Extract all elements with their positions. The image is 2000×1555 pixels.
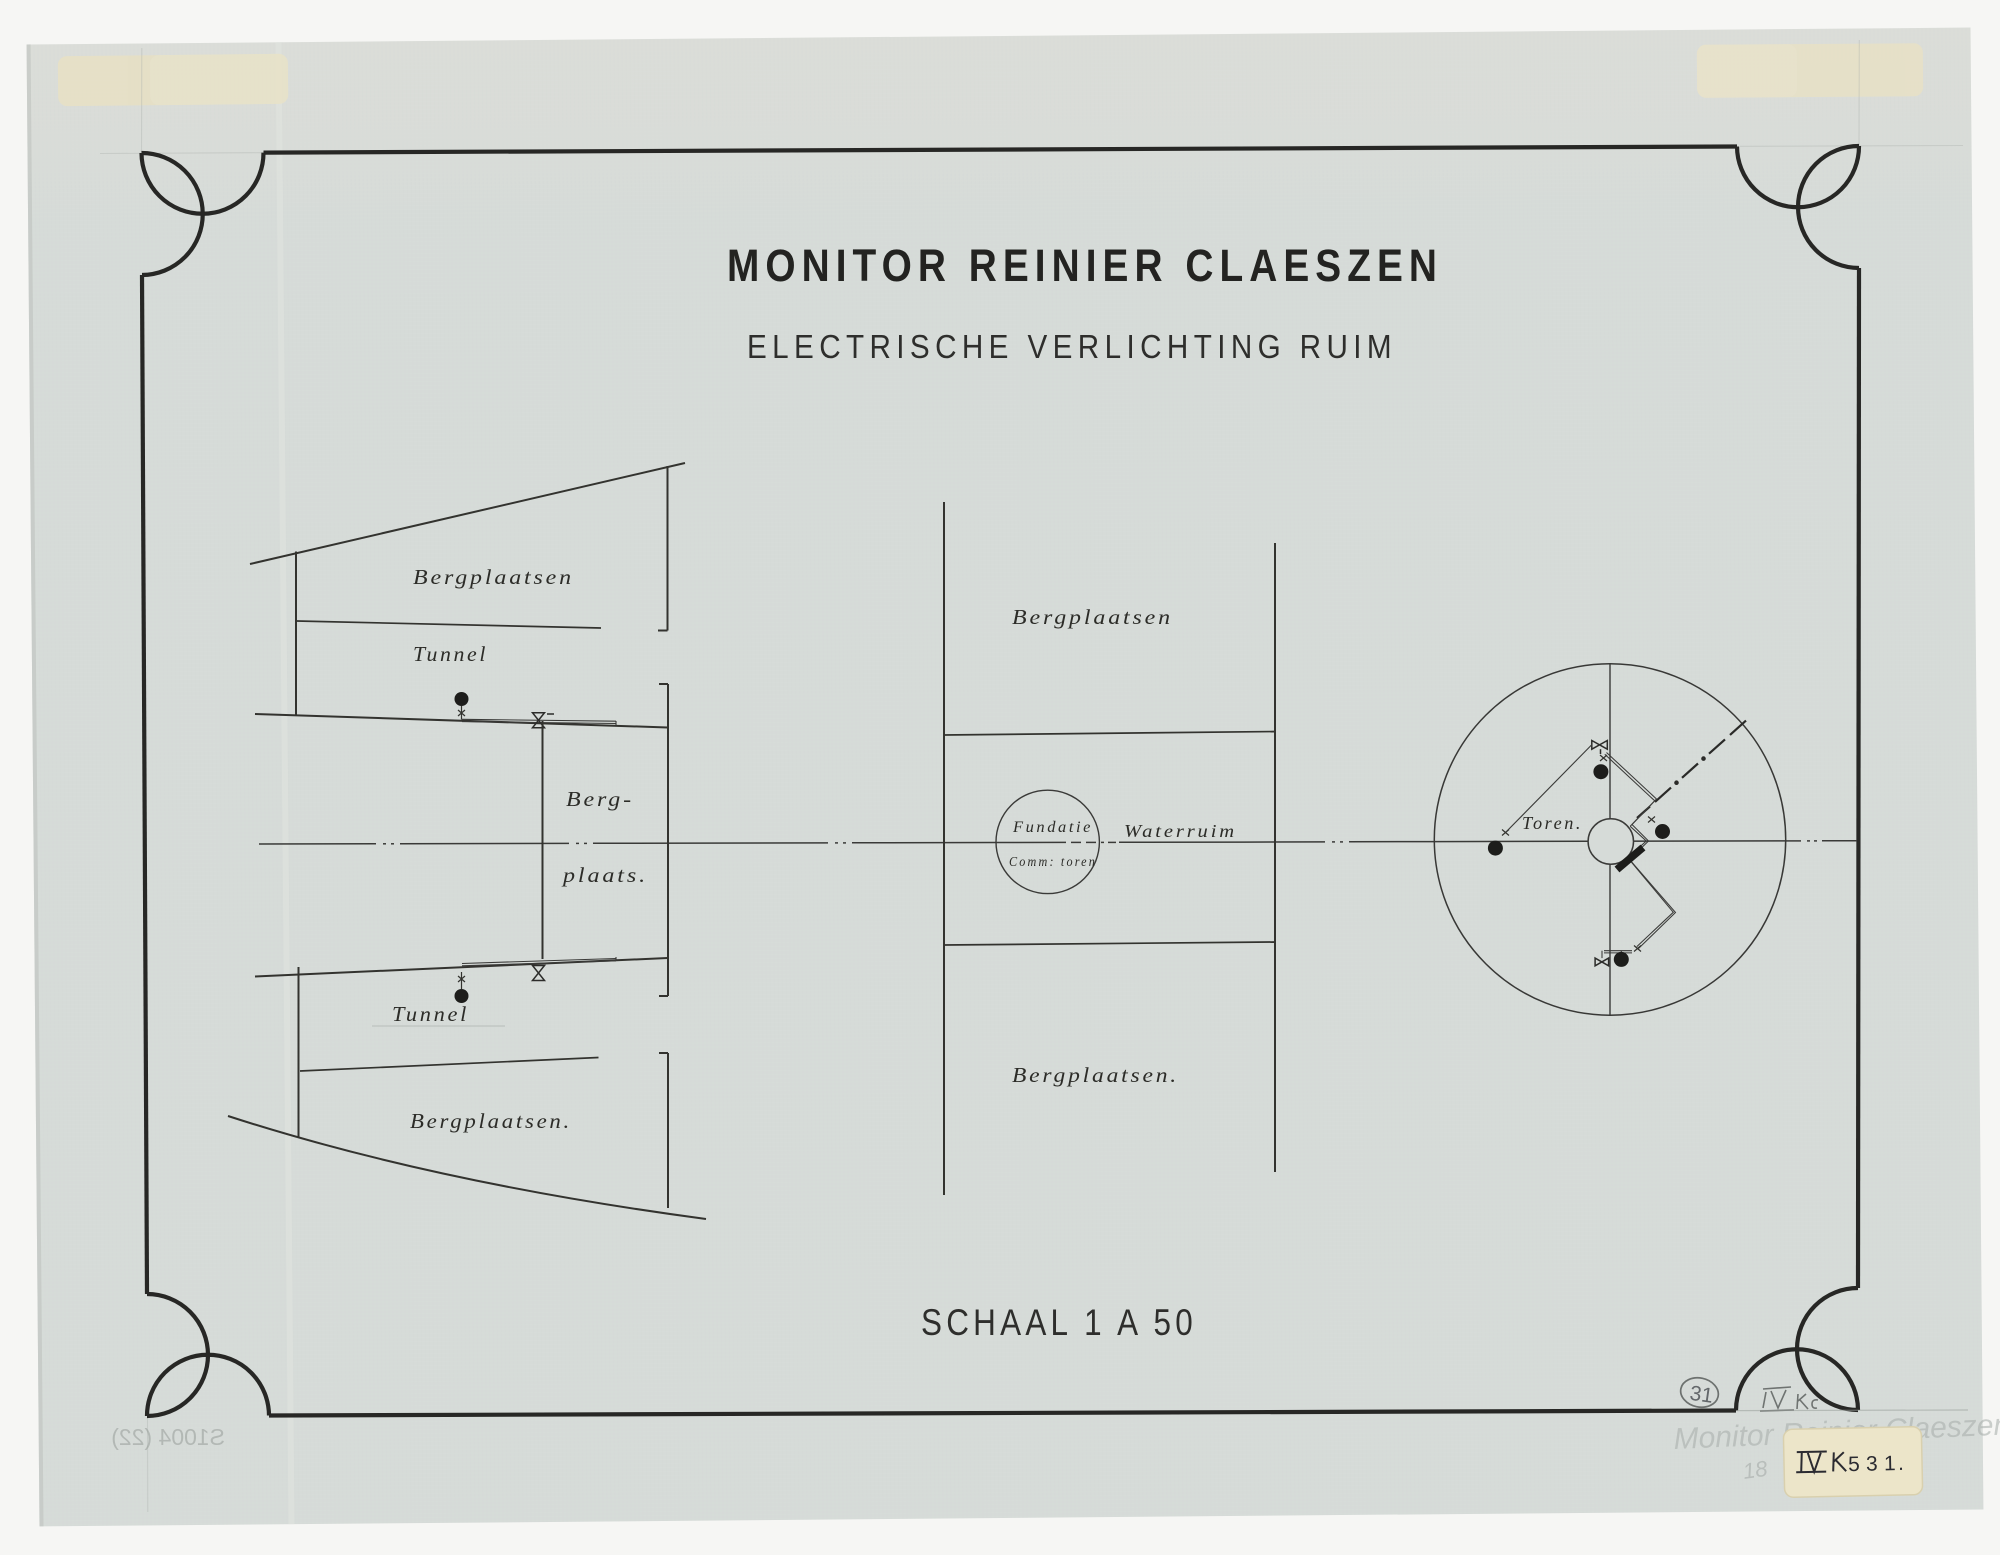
svg-text:Bergplaatsen: Bergplaatsen <box>1012 605 1173 629</box>
svg-text:Bergplaatsen.: Bergplaatsen. <box>410 1109 572 1133</box>
svg-text:18: 18 <box>1741 1456 1769 1484</box>
svg-text:ELECTRISCHE VERLICHTING RUIM: ELECTRISCHE VERLICHTING RUIM <box>747 328 1397 365</box>
svg-text:Berg-: Berg- <box>566 787 634 811</box>
svg-text:Bergplaatsen: Bergplaatsen <box>413 565 574 589</box>
svg-text:plaats.: plaats. <box>561 863 648 887</box>
svg-text:S1004 (22): S1004 (22) <box>111 1424 225 1450</box>
svg-text:Comm: toren: Comm: toren <box>1009 855 1097 870</box>
svg-text:Waterruim: Waterruim <box>1124 821 1237 841</box>
svg-text:SCHAAL 1 A 50: SCHAAL 1 A 50 <box>921 1302 1197 1343</box>
svg-text:3: 3 <box>1866 1452 1878 1475</box>
svg-text:.: . <box>1898 1452 1904 1475</box>
svg-text:MONITOR REINIER CLAESZEN: MONITOR REINIER CLAESZEN <box>727 240 1443 291</box>
svg-text:Bergplaatsen.: Bergplaatsen. <box>1012 1063 1179 1087</box>
svg-text:Toren.: Toren. <box>1522 813 1583 833</box>
svg-text:Fundatie: Fundatie <box>1012 819 1093 836</box>
svg-text:5: 5 <box>1848 1453 1860 1476</box>
svg-text:Tunnel: Tunnel <box>413 642 488 666</box>
svg-text:Tunnel: Tunnel <box>392 1002 469 1026</box>
svg-text:1: 1 <box>1884 1452 1896 1475</box>
svg-text:31: 31 <box>1688 1382 1714 1408</box>
